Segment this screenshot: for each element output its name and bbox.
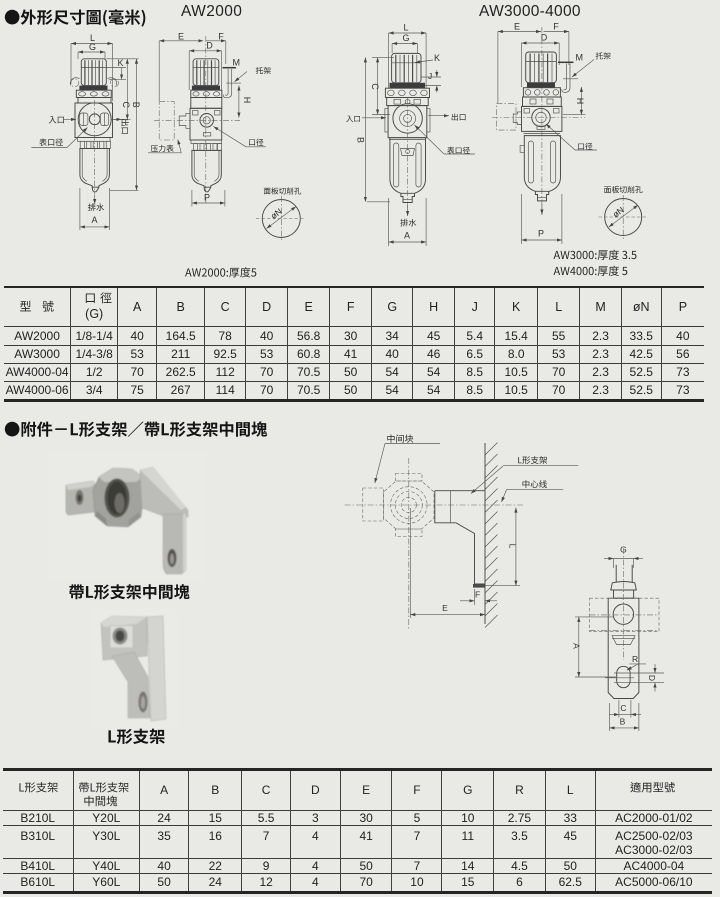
svg-text:A: A xyxy=(404,231,410,241)
svg-text:H: H xyxy=(575,98,585,105)
svg-text:C: C xyxy=(620,703,626,713)
svg-text:M: M xyxy=(233,58,241,68)
svg-text:M: M xyxy=(576,53,584,63)
svg-text:F: F xyxy=(218,32,224,42)
svg-text:G: G xyxy=(402,33,409,43)
svg-text:E: E xyxy=(178,32,184,42)
svg-text:D: D xyxy=(647,675,657,681)
svg-text:R: R xyxy=(632,654,638,664)
svg-text:C: C xyxy=(121,101,131,108)
svg-text:D: D xyxy=(206,41,213,51)
svg-text:F: F xyxy=(553,22,559,32)
svg-text:L: L xyxy=(508,544,518,549)
svg-text:H: H xyxy=(242,97,252,104)
svg-text:E: E xyxy=(442,603,448,613)
svg-text:A: A xyxy=(91,215,97,225)
svg-text:C: C xyxy=(370,83,380,90)
svg-text:K: K xyxy=(117,58,123,68)
svg-text:B: B xyxy=(131,102,141,108)
svg-text:P: P xyxy=(538,229,544,239)
svg-text:G: G xyxy=(89,42,96,52)
svg-text:L: L xyxy=(403,23,408,33)
svg-text:K: K xyxy=(434,53,440,63)
svg-text:B: B xyxy=(620,717,626,727)
svg-text:J: J xyxy=(428,71,432,81)
svg-text:P: P xyxy=(204,193,210,203)
svg-text:E: E xyxy=(514,22,520,32)
svg-text:B: B xyxy=(356,137,366,143)
svg-text:A: A xyxy=(572,643,582,649)
svg-text:F: F xyxy=(475,590,480,600)
